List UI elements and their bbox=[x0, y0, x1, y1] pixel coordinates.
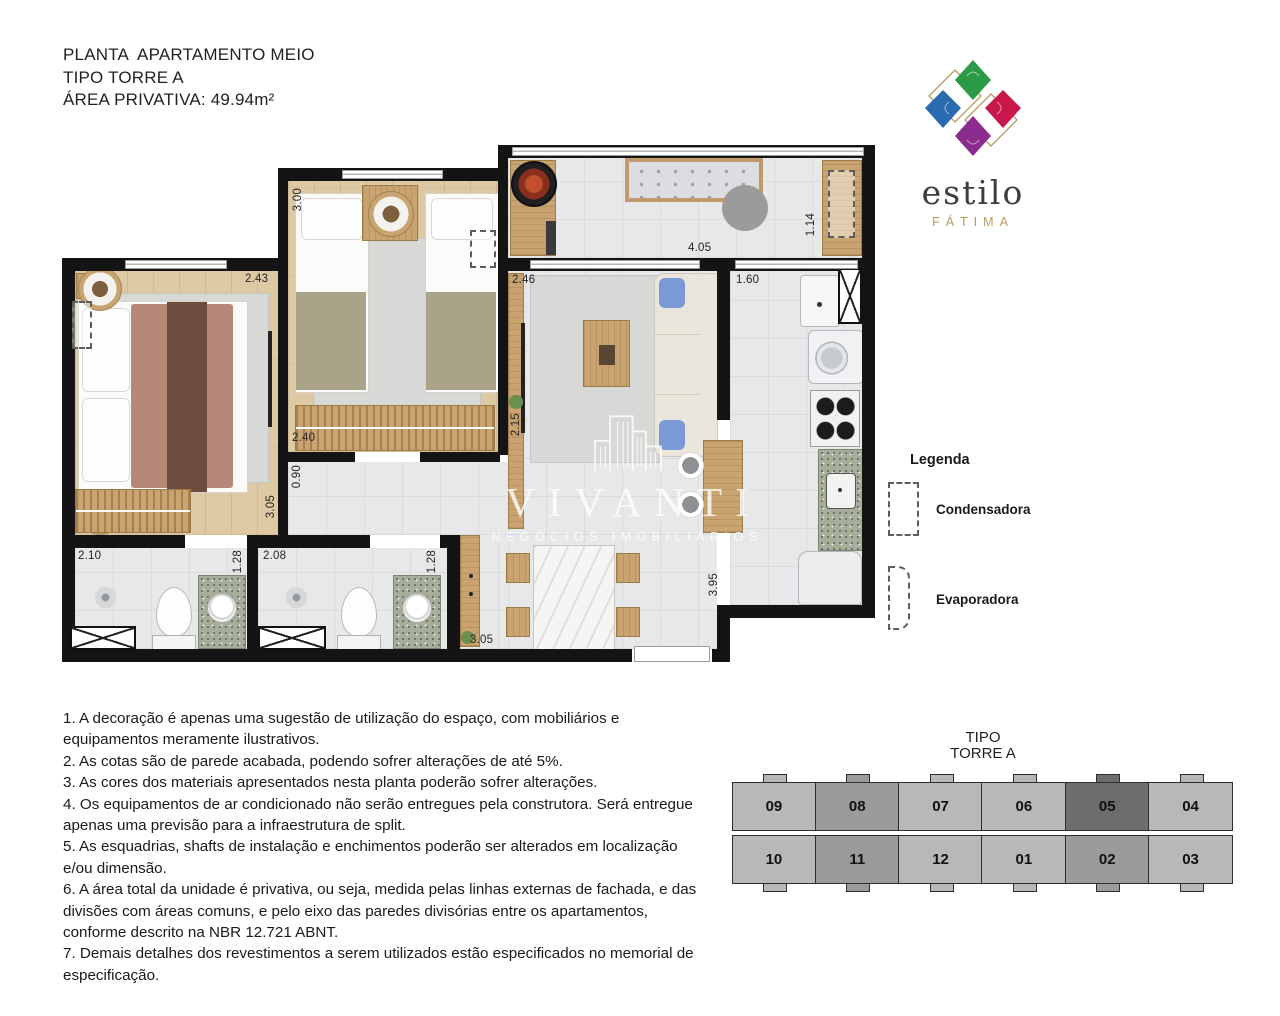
floor-hall bbox=[288, 462, 508, 535]
bar-counter bbox=[703, 440, 743, 533]
wall bbox=[258, 535, 370, 548]
tank-drain bbox=[817, 302, 822, 307]
keyplan-unit-11: 11 bbox=[815, 835, 900, 884]
note: 1. A decoração é apenas uma sugestão de … bbox=[63, 708, 697, 751]
sofa-pillow-blue bbox=[659, 420, 685, 450]
bath2-sink bbox=[402, 593, 432, 623]
legend-title: Legenda bbox=[910, 452, 1088, 468]
bed-blanket bbox=[296, 292, 366, 390]
sofa-pillow-blue bbox=[659, 278, 685, 308]
kitchen-window bbox=[735, 260, 858, 269]
dining-table bbox=[533, 545, 615, 651]
table-lamp bbox=[368, 191, 414, 237]
pillow bbox=[301, 198, 363, 240]
wall bbox=[717, 605, 875, 618]
legend-item-label: Condensadora bbox=[936, 502, 1031, 517]
bedroom2-window bbox=[342, 170, 443, 179]
keyplan-unit-01: 01 bbox=[981, 835, 1066, 884]
sofa-cushion-line bbox=[655, 334, 701, 335]
keyplan-unit-05-highlighted: 05 bbox=[1065, 782, 1150, 831]
condenser-symbol bbox=[888, 482, 919, 536]
legend: Legenda Condensadora Evaporadora bbox=[888, 452, 1088, 638]
evaporator-marker-suite bbox=[72, 301, 92, 349]
plan-title: PLANTA APARTAMENTO MEIO bbox=[63, 44, 315, 67]
unit-number: 09 bbox=[766, 798, 783, 815]
dimension-label: 0.90 bbox=[291, 465, 303, 488]
keyplan-row-bottom: 10 11 12 01 02 03 bbox=[733, 835, 1233, 884]
dimension-label: 1.60 bbox=[736, 274, 759, 286]
dimension-label: 3.05 bbox=[470, 634, 493, 646]
wall bbox=[420, 452, 500, 462]
floor-plan: 2.43 3.00 2.46 4.05 1.14 1.60 2.40 0.90 … bbox=[60, 143, 876, 663]
keyplan-unit-06: 06 bbox=[981, 782, 1066, 831]
unit-number: 08 bbox=[849, 798, 866, 815]
floorplan-sheet: { "title": { "line1": "PLANTA APARTAMENT… bbox=[0, 0, 1280, 1016]
note: 3. As cores dos materiais apresentados n… bbox=[63, 772, 697, 793]
dimension-label: 2.15 bbox=[510, 413, 522, 436]
unit-number: 12 bbox=[932, 851, 949, 868]
keyplan-unit-10: 10 bbox=[732, 835, 817, 884]
cabinet-knob bbox=[469, 574, 473, 578]
wall bbox=[498, 271, 508, 455]
private-area: ÁREA PRIVATIVA: 49.94m² bbox=[63, 89, 315, 112]
bar-stool bbox=[677, 491, 704, 518]
shower-head bbox=[95, 587, 116, 608]
dining-chair bbox=[506, 607, 530, 637]
legend-item-label: Evaporadora bbox=[936, 592, 1019, 607]
logo-wordmark: estilo bbox=[898, 173, 1048, 212]
bed-runner bbox=[167, 302, 207, 492]
keyplan-row-top: 09 08 07 06 05 04 bbox=[733, 782, 1233, 831]
evaporator-symbol bbox=[888, 566, 910, 630]
pinwheel-logo-icon bbox=[915, 52, 1031, 164]
washing-machine bbox=[808, 330, 864, 384]
unit-number: 07 bbox=[932, 798, 949, 815]
logo-subname: FÁTIMA bbox=[898, 215, 1048, 229]
disclaimer-notes: 1. A decoração é apenas uma sugestão de … bbox=[63, 708, 697, 986]
laundry-tank bbox=[800, 275, 840, 327]
toilet-tank bbox=[337, 635, 381, 650]
single-bed-right bbox=[425, 193, 499, 393]
keyplan-unit-09: 09 bbox=[732, 782, 817, 831]
dimension-label: 2.46 bbox=[512, 274, 535, 286]
cabinet-knob bbox=[469, 592, 473, 596]
unit-number: 01 bbox=[1016, 851, 1033, 868]
wall bbox=[447, 535, 460, 662]
note: 6. A área total da unidade é privativa, … bbox=[63, 879, 697, 943]
wall bbox=[717, 258, 730, 420]
sofa-cushion-line bbox=[655, 394, 701, 395]
sofa bbox=[654, 273, 718, 457]
legend-item-evaporator: Evaporadora bbox=[888, 566, 1088, 638]
coffee-table bbox=[583, 320, 630, 387]
condenser-unit-marker bbox=[828, 170, 855, 238]
wall bbox=[498, 145, 508, 271]
note: 5. As esquadrias, shafts de instalação e… bbox=[63, 836, 697, 879]
toilet-tank bbox=[152, 635, 196, 650]
grill-utensil bbox=[546, 221, 556, 255]
suite-tv-panel bbox=[268, 331, 272, 427]
unit-number: 10 bbox=[766, 851, 783, 868]
single-bed-left bbox=[295, 193, 369, 393]
toilet bbox=[341, 587, 377, 637]
dimension-label: 4.05 bbox=[688, 242, 711, 254]
dimension-label: 1.28 bbox=[232, 550, 244, 573]
dimension-label: 2.08 bbox=[263, 550, 286, 562]
pillow bbox=[82, 398, 130, 482]
note: 7. Demais detalhes dos revestimentos a s… bbox=[63, 943, 697, 986]
bedroom2-wardrobe bbox=[295, 405, 495, 451]
dimension-label: 3.95 bbox=[708, 573, 720, 596]
unit-number: 04 bbox=[1182, 798, 1199, 815]
keyplan-unit-03: 03 bbox=[1148, 835, 1233, 884]
dining-chair bbox=[506, 553, 530, 583]
wall bbox=[62, 649, 632, 662]
terrace-railing-window bbox=[512, 147, 864, 156]
unit-number: 11 bbox=[849, 851, 865, 868]
wall bbox=[862, 145, 875, 618]
keyplan-unit-04: 04 bbox=[1148, 782, 1233, 831]
unit-number: 02 bbox=[1099, 851, 1116, 868]
shower-box bbox=[258, 626, 326, 650]
entry-door bbox=[634, 646, 710, 662]
dimension-label: 2.40 bbox=[292, 432, 315, 444]
dining-chair bbox=[616, 553, 640, 583]
dining-chair bbox=[616, 607, 640, 637]
hall-cabinet bbox=[460, 535, 480, 647]
wall bbox=[62, 535, 185, 548]
shaft-box bbox=[838, 268, 862, 324]
keyplan-title-line1: TIPO bbox=[733, 730, 1233, 746]
wall bbox=[278, 452, 355, 462]
bath1-sink bbox=[207, 593, 237, 623]
dimension-label: 1.28 bbox=[426, 550, 438, 573]
shower-box bbox=[70, 626, 136, 650]
dimension-label: 1.14 bbox=[805, 213, 817, 236]
plan-subtitle: TIPO TORRE A bbox=[63, 67, 315, 90]
wall bbox=[247, 535, 258, 662]
suite-wardrobe bbox=[75, 489, 191, 533]
master-bed bbox=[78, 301, 248, 493]
sink-drain bbox=[838, 488, 842, 492]
note: 4. Os equipamentos de ar condicionado nã… bbox=[63, 794, 697, 837]
note: 2. As cotas são de parede acabada, poden… bbox=[63, 751, 697, 772]
estilo-fatima-logo: estilo FÁTIMA bbox=[898, 52, 1048, 229]
dimension-label: 3.00 bbox=[292, 188, 304, 211]
title-block: PLANTA APARTAMENTO MEIO TIPO TORRE A ÁRE… bbox=[63, 44, 315, 112]
dimension-label: 2.10 bbox=[78, 550, 101, 562]
tower-keyplan: TIPO TORRE A 09 08 07 06 05 04 10 11 12 … bbox=[733, 730, 1233, 884]
coffee-table-tray bbox=[599, 345, 615, 365]
bar-stool bbox=[677, 452, 704, 479]
shower-head bbox=[286, 587, 307, 608]
cooktop-stove bbox=[810, 390, 860, 447]
keyplan-unit-02: 02 bbox=[1065, 835, 1150, 884]
unit-number: 05 bbox=[1099, 798, 1116, 815]
wall bbox=[278, 168, 288, 535]
terrace-sliding-door bbox=[530, 260, 700, 269]
keyplan-unit-08: 08 bbox=[815, 782, 900, 831]
dimension-label: 2.43 bbox=[245, 273, 268, 285]
toilet bbox=[156, 587, 192, 637]
legend-item-condenser: Condensadora bbox=[888, 482, 1088, 554]
keyplan-title-line2: TORRE A bbox=[733, 746, 1233, 762]
kitchen-sink bbox=[826, 473, 856, 509]
dimension-label: 3.05 bbox=[265, 495, 277, 518]
suite-window bbox=[125, 260, 227, 269]
unit-number: 06 bbox=[1016, 798, 1033, 815]
bbq-grill bbox=[511, 161, 557, 207]
unit-number: 03 bbox=[1182, 851, 1199, 868]
sideboard-plant bbox=[509, 395, 523, 409]
evaporator-marker-bedroom2 bbox=[470, 230, 496, 268]
bed-blanket bbox=[426, 292, 496, 390]
keyplan-unit-12: 12 bbox=[898, 835, 983, 884]
fridge bbox=[798, 551, 862, 605]
terrace-round-table bbox=[722, 185, 768, 231]
keyplan-unit-07: 07 bbox=[898, 782, 983, 831]
